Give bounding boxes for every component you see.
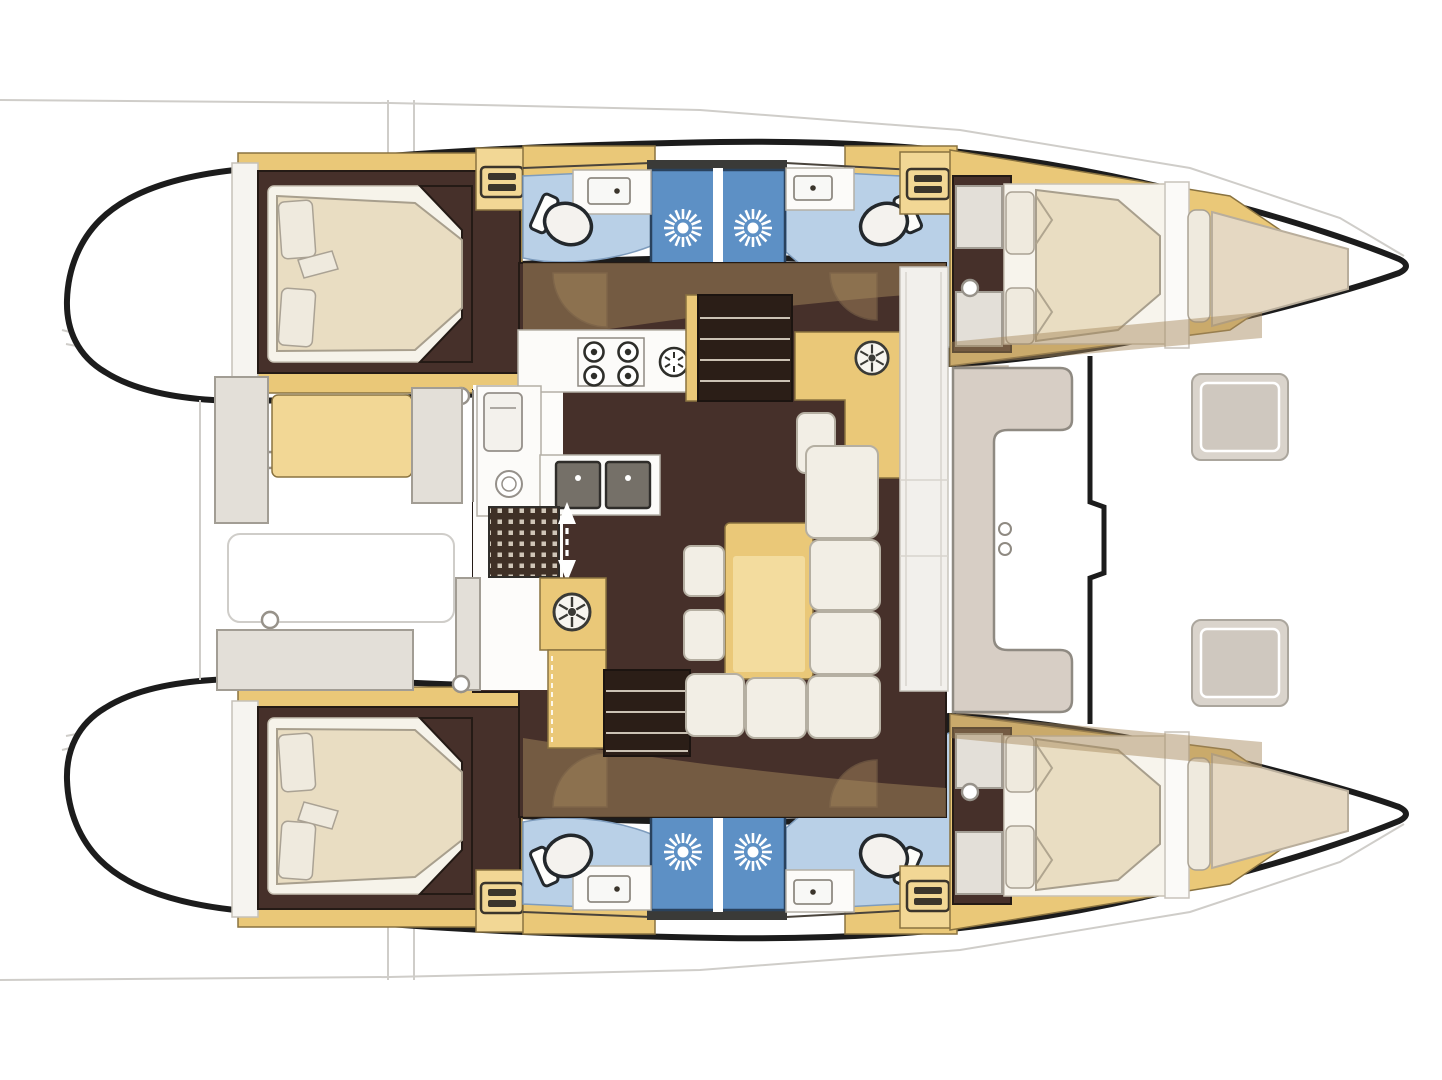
cockpit-aft-bench xyxy=(217,630,413,690)
round-sink xyxy=(496,471,522,497)
galley-cabinet xyxy=(548,650,606,748)
cup-holder xyxy=(999,523,1011,535)
sofa-cushion xyxy=(746,678,806,738)
burner-icon xyxy=(585,367,604,386)
stairs-to-top-hull xyxy=(686,295,792,401)
sofa-cushion xyxy=(806,446,878,538)
catamaran-floor-plan xyxy=(0,0,1442,1080)
single-burner-icon xyxy=(660,348,688,376)
salon-side-console xyxy=(900,267,948,691)
cockpit-table xyxy=(272,395,412,477)
cockpit-side-bench xyxy=(215,377,268,523)
sofa-cushion xyxy=(686,674,744,736)
floor-grate-icon xyxy=(489,507,559,577)
fridge-cabinet xyxy=(477,386,541,516)
cleat-icon xyxy=(262,612,278,628)
mast-foot-icon xyxy=(554,594,590,630)
mast-foot xyxy=(540,578,606,748)
cleat-icon xyxy=(453,676,469,692)
helm-dial-icon xyxy=(856,342,888,374)
cockpit-seat xyxy=(412,388,462,503)
floor-plan-canvas xyxy=(0,0,1442,1080)
stool xyxy=(684,546,724,596)
burner-icon xyxy=(619,343,638,362)
cockpit-step-seat xyxy=(456,578,480,690)
sofa-corner-cushion xyxy=(808,676,880,738)
burner-icon xyxy=(585,343,604,362)
burner-icon xyxy=(619,367,638,386)
stairs-to-bottom-hull xyxy=(604,670,690,756)
sofa-cushion xyxy=(810,612,880,674)
cup-holder xyxy=(999,543,1011,555)
sofa-cushion xyxy=(810,540,880,610)
stool xyxy=(684,610,724,660)
